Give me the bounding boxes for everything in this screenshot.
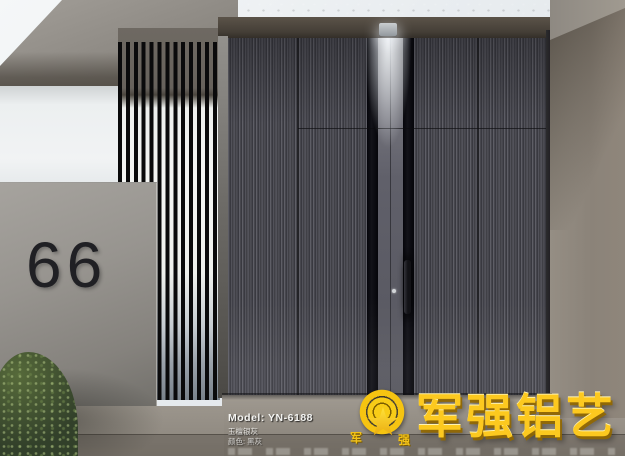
door-panels — [228, 38, 546, 396]
footer-blurred-text — [228, 448, 618, 455]
horizontal-panel-seam — [298, 128, 546, 129]
door-left-frame — [218, 36, 228, 398]
downlight-beam — [358, 38, 418, 253]
brand-logo-char-left: 军 — [350, 429, 362, 446]
watermark-model: Model: YN-6188 — [228, 412, 313, 424]
brand-logo-char-right: 强 — [398, 431, 410, 448]
brand-name: 军强铝艺 — [416, 391, 625, 443]
door-handle — [404, 260, 411, 314]
entrance-door-render: 66 Model: YN-6188 玉檀银灰 颜色: 黑灰 军 强 军强铝艺 — [0, 0, 625, 456]
recessed-white-wall — [0, 86, 124, 190]
watermark-color: 颜色: 黑灰 — [228, 436, 262, 447]
house-number: 66 — [26, 228, 146, 302]
lock-cylinder — [392, 289, 396, 293]
downlight-fixture — [379, 23, 397, 36]
